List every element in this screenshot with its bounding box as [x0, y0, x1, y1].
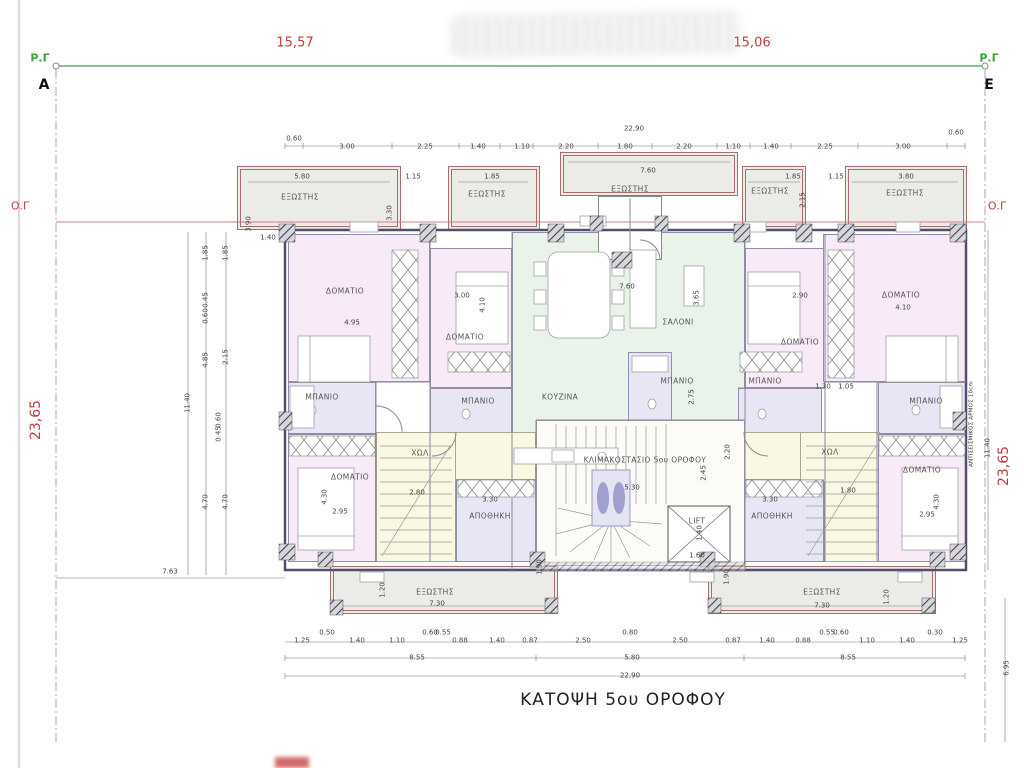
side-dim-right: 23,65	[997, 446, 1011, 486]
dim-label: 1.20	[380, 582, 387, 598]
dim-label: 1.10	[725, 144, 741, 151]
room-label: ΑΠΟΘΗΚΗ	[469, 512, 511, 520]
dim-label: 3.65	[694, 290, 701, 306]
dim-label: 2.90	[792, 293, 808, 300]
room-label: ΜΠΑΝΙΟ	[748, 377, 781, 385]
room-label: ΔΟΜΑΤΙΟ	[446, 333, 484, 341]
dim-label: 0.87	[725, 638, 741, 645]
dim-label: 1.15	[828, 174, 844, 181]
dim-label: 0.45	[203, 292, 210, 308]
dim-label: 11.40	[985, 438, 992, 458]
room-label: ΣΑΛΟΝΙ	[662, 318, 693, 326]
dim-label: 5.80	[294, 174, 310, 181]
room-label: ΔΟΜΑΤΙΟ	[882, 291, 920, 299]
dim-label: 1.25	[294, 638, 310, 645]
dim-label: 2.15	[223, 349, 230, 365]
room-label: ΕΞΩΣΤΗΣ	[468, 190, 506, 198]
dim-label: 2.45	[701, 465, 708, 481]
dim-label: 1.25	[952, 638, 968, 645]
dim-label: 0.60	[286, 136, 302, 143]
room-label: ΔΟΜΑΤΙΟ	[781, 338, 819, 346]
dim-label: 1.40	[470, 144, 486, 151]
room-label: ΕΞΩΣΤΗΣ	[803, 588, 841, 596]
boundary-dim-left: 15,57	[276, 37, 313, 50]
room-label: ΔΟΜΑΤΙΟ	[903, 466, 941, 474]
room-label: ΚΟΥΖΙΝΑ	[542, 393, 578, 401]
dim-label: 1.10	[859, 638, 875, 645]
drawing-title: ΚΑΤΟΨΗ 5ου ΟΡΟΦΟΥ	[520, 690, 726, 710]
dim-label: 3.80	[898, 174, 914, 181]
dim-label: 2.80	[409, 490, 425, 497]
dim-label: 2.95	[332, 509, 348, 516]
dim-label: 1.60	[689, 553, 705, 560]
dim-label: 7.63	[162, 569, 178, 576]
dim-label: 8.55	[409, 655, 425, 662]
dim-label: 2.95	[919, 512, 935, 519]
dim-label: 7.30	[814, 603, 830, 610]
dim-label: 1.40	[349, 638, 365, 645]
dim-label: 2.75	[689, 389, 696, 405]
dim-label: 3.00	[454, 293, 470, 300]
dim-label: 1.40	[697, 525, 704, 541]
dim-label: 0.88	[795, 638, 811, 645]
dim-label: 3.30	[762, 497, 778, 504]
room-label: ΑΠΟΘΗΚΗ	[751, 512, 793, 520]
dim-label: 1.10	[389, 638, 405, 645]
boundary-point-label-right: Ρ.Γ	[979, 53, 998, 64]
corner-label-e: Ε	[984, 78, 994, 92]
dim-label: 1.85	[785, 174, 801, 181]
dim-label: 1.80	[840, 488, 856, 495]
dim-label: 0.60	[203, 308, 210, 324]
dim-label: 11.40	[185, 393, 192, 413]
room-label: ΜΠΑΝΙΟ	[305, 393, 338, 401]
dim-label: 0.60	[833, 630, 849, 637]
dim-label: 4.30	[322, 489, 329, 505]
dim-label: 0.80	[622, 630, 638, 637]
dim-label: 2.20	[558, 144, 574, 151]
dim-label: 1.40	[260, 235, 276, 242]
corner-label-a: Α	[39, 78, 50, 92]
room-label: ΜΠΑΝΙΟ	[660, 377, 693, 385]
dim-label: 2.20	[725, 444, 732, 460]
dim-label: 3.30	[482, 497, 498, 504]
dim-label: 4.10	[895, 305, 911, 312]
room-label: ΜΠΑΝΙΟ	[909, 397, 942, 405]
dim-label: 2.25	[817, 144, 833, 151]
room-label: ΕΞΩΣΤΗΣ	[281, 193, 319, 201]
dim-label: 1.15	[405, 174, 421, 181]
room-label: LIFT	[689, 517, 706, 525]
dim-label: 1.40	[489, 638, 505, 645]
dim-label: 4.70	[203, 494, 210, 510]
boundary-point-label-left: Ρ.Γ	[30, 53, 49, 64]
dim-label: 22,90	[620, 673, 640, 680]
dim-label: 2.25	[417, 144, 433, 151]
dim-label: 8.55	[840, 655, 856, 662]
dim-label: 2.50	[672, 638, 688, 645]
dim-label: 1.20	[884, 589, 891, 605]
dim-label: 1.80	[617, 144, 633, 151]
dim-label: 1.05	[838, 384, 854, 391]
room-label: ΔΟΜΑΤΙΟ	[331, 473, 369, 481]
dim-label: 1.40	[899, 638, 915, 645]
annotation-layer: Ρ.ΓΡ.ΓΑΕ15,5715,06Ο.ΓΟ.Γ23,6523,65ΑΝΤΙΣΕ…	[0, 0, 1024, 768]
dim-label: 0.88	[452, 638, 468, 645]
room-label: ΕΞΩΣΤΗΣ	[416, 588, 454, 596]
room-label: ΧΩΛ	[821, 448, 838, 456]
dim-label: 0.50	[319, 630, 335, 637]
dim-label: 4.70	[223, 494, 230, 510]
dim-label: 3.00	[339, 144, 355, 151]
dim-label: 3.00	[895, 144, 911, 151]
room-label: ΔΟΜΑΤΙΟ	[326, 287, 364, 295]
dim-label: 5.30	[624, 485, 640, 492]
dim-label: 7.60	[619, 284, 635, 291]
room-label: ΕΞΩΣΤΗΣ	[611, 185, 649, 193]
dim-label: 3.90	[246, 216, 253, 232]
dim-label: 1.90	[724, 569, 731, 585]
dim-label: 22,90	[624, 126, 644, 133]
dim-label: 1.40	[759, 638, 775, 645]
dim-label: 1.85	[223, 245, 230, 261]
og-label-right: Ο.Γ	[988, 201, 1006, 212]
dim-label: 3.30	[387, 205, 394, 221]
dim-label: 1.40	[763, 144, 779, 151]
floor-plan-sheet: Ρ.ΓΡ.ΓΑΕ15,5715,06Ο.ΓΟ.Γ23,6523,65ΑΝΤΙΣΕ…	[0, 0, 1024, 768]
dim-label: 7.30	[429, 601, 445, 608]
dim-label: 4.30	[934, 494, 941, 510]
room-label: ΕΞΩΣΤΗΣ	[751, 187, 789, 195]
dim-label: 5.80	[624, 655, 640, 662]
dim-label: 4.95	[344, 320, 360, 327]
dim-label: 2.50	[575, 638, 591, 645]
red-mark	[275, 757, 309, 768]
dim-label: 0.45	[216, 426, 223, 442]
room-label: ΕΞΩΣΤΗΣ	[886, 189, 924, 197]
dim-label: 4.10	[480, 297, 487, 313]
watermark-blur	[452, 9, 741, 58]
dim-label: 0.87	[522, 638, 538, 645]
dim-label: 0.55	[435, 630, 451, 637]
dim-label: 1.90	[537, 559, 544, 575]
dim-label: 1.85	[203, 245, 210, 261]
dim-label: 2.15	[800, 192, 807, 208]
og-label-left: Ο.Γ	[11, 201, 29, 212]
room-label: ΜΠΑΝΙΟ	[461, 397, 494, 405]
dim-label: 0.60	[948, 130, 964, 137]
seismic-joint-label: ΑΝΤΙΣΕΙΣΜΙΚΟΣ ΑΡΜΟΣ 10cm	[969, 381, 975, 467]
dim-label: 4.85	[203, 352, 210, 368]
dim-label: 1.85	[484, 174, 500, 181]
dim-label: 1.30	[815, 384, 831, 391]
dim-label: 0.30	[927, 630, 943, 637]
dim-label: 1.10	[514, 144, 530, 151]
dim-label: 7.60	[640, 168, 656, 175]
side-dim-left: 23,65	[29, 400, 43, 440]
room-label: ΧΩΛ	[411, 449, 428, 457]
room-label: ΚΛΙΜΑΚΟΣΤΑΣΙΟ 5ου ΟΡΟΦΟΥ	[584, 456, 707, 464]
dim-label: 6.95	[1004, 660, 1011, 676]
dim-label: 2.20	[676, 144, 692, 151]
